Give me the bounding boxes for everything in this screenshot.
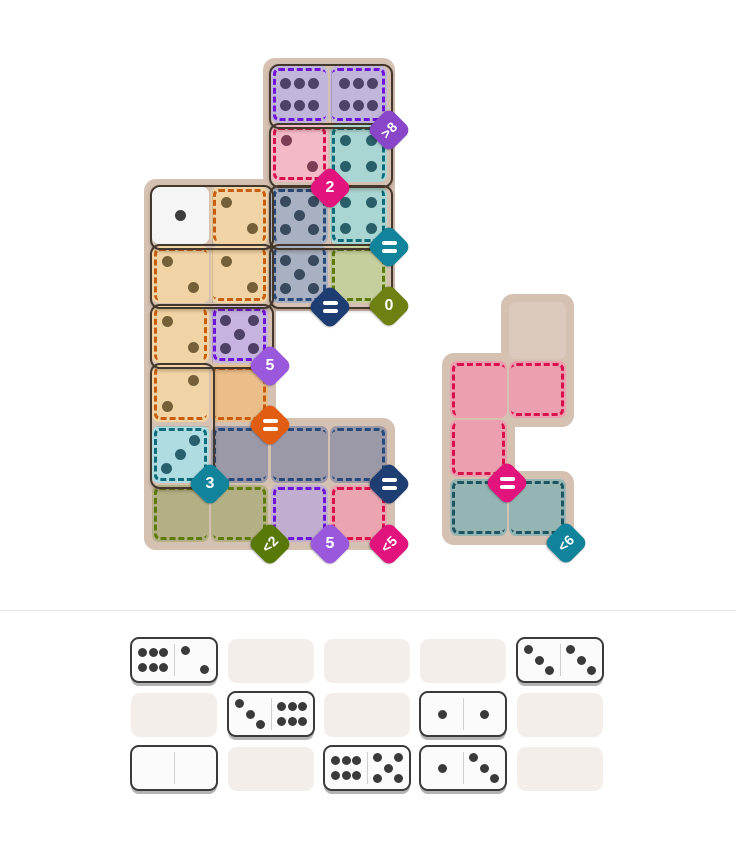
tray-slot-1-2[interactable] xyxy=(324,693,410,737)
pip xyxy=(280,255,291,266)
region-border xyxy=(213,248,266,301)
tile-divider xyxy=(560,644,561,676)
tray-slot-1-4[interactable] xyxy=(517,693,603,737)
constraint-badge-5: 5 xyxy=(248,344,292,388)
pip xyxy=(235,699,244,708)
pip xyxy=(308,224,319,235)
badge-label xyxy=(308,285,352,329)
badge-label: 3 xyxy=(188,462,232,506)
pip xyxy=(308,255,319,266)
constraint-badge-<2: <2 xyxy=(248,522,292,566)
pip xyxy=(175,210,186,221)
pip xyxy=(331,756,340,765)
pip xyxy=(577,656,586,665)
constraint-badge-= xyxy=(485,461,529,505)
pip xyxy=(342,771,351,780)
pip xyxy=(524,645,533,654)
pip xyxy=(340,223,351,234)
badge-label xyxy=(248,403,292,447)
badge-label xyxy=(367,462,411,506)
tray-domino-1-3[interactable] xyxy=(419,745,507,791)
pip xyxy=(366,197,377,208)
region-border xyxy=(154,308,207,361)
pip xyxy=(288,717,297,726)
badge-label xyxy=(485,461,529,505)
constraint-badge-= xyxy=(248,403,292,447)
board-cell-C1[interactable] xyxy=(271,66,328,123)
pip xyxy=(149,648,158,657)
pip xyxy=(535,656,544,665)
pip xyxy=(308,100,319,111)
tile-divider xyxy=(463,752,464,784)
equals-icon xyxy=(382,241,397,246)
pip xyxy=(366,161,377,172)
pip xyxy=(294,100,305,111)
region-border xyxy=(154,248,207,301)
pip xyxy=(247,223,258,234)
pip xyxy=(221,197,232,208)
pip xyxy=(294,210,305,221)
pip xyxy=(149,663,158,672)
pip xyxy=(438,764,447,773)
pip xyxy=(331,771,340,780)
pip xyxy=(480,710,489,719)
badge-label: <5 xyxy=(358,513,420,575)
tile-divider xyxy=(367,752,368,784)
pip xyxy=(308,78,319,89)
pip xyxy=(340,135,351,146)
equals-icon xyxy=(500,477,515,482)
badge-label: <2 xyxy=(239,513,301,575)
pip xyxy=(294,269,305,280)
pip xyxy=(280,100,291,111)
badge-label: 0 xyxy=(367,284,411,328)
pip xyxy=(298,717,307,726)
pip xyxy=(175,449,186,460)
region-border xyxy=(452,363,505,416)
tray-domino-3-3[interactable] xyxy=(516,637,604,683)
pip xyxy=(352,771,361,780)
pip xyxy=(221,256,232,267)
pip xyxy=(352,756,361,765)
tile-divider xyxy=(271,698,272,730)
tray-domino-3-6[interactable] xyxy=(227,691,315,737)
tray-slot-1-0[interactable] xyxy=(131,693,217,737)
pip xyxy=(342,756,351,765)
pip xyxy=(159,663,168,672)
pip xyxy=(281,135,292,146)
pip xyxy=(294,78,305,89)
badge-label: 2 xyxy=(308,166,352,210)
tile-divider xyxy=(174,752,175,784)
pip xyxy=(188,282,199,293)
section-divider xyxy=(0,610,736,611)
constraint-badge-<6: <6 xyxy=(544,521,588,565)
tile-divider xyxy=(174,644,175,676)
pip xyxy=(159,648,168,657)
pip xyxy=(566,645,575,654)
region-border xyxy=(273,68,326,121)
tray-slot-2-1[interactable] xyxy=(228,747,314,791)
constraint-badge-5: 5 xyxy=(308,522,352,566)
constraint-badge->8: >8 xyxy=(367,108,411,152)
pip xyxy=(162,316,173,327)
pip xyxy=(353,78,364,89)
constraint-badge-0: 0 xyxy=(367,284,411,328)
pip xyxy=(277,702,286,711)
tray-domino-6-5[interactable] xyxy=(323,745,411,791)
tray-domino-6-2[interactable] xyxy=(130,637,218,683)
constraint-badge-= xyxy=(367,462,411,506)
region-border xyxy=(511,363,564,416)
region-border xyxy=(154,367,207,420)
tray-slot-0-1[interactable] xyxy=(228,639,314,683)
tray-slot-0-3[interactable] xyxy=(420,639,506,683)
equals-icon xyxy=(382,478,397,483)
pip xyxy=(181,646,190,655)
board-cell-A4[interactable] xyxy=(152,246,209,303)
pip xyxy=(298,702,307,711)
pip xyxy=(189,435,200,446)
board-cell-A3[interactable] xyxy=(152,187,209,244)
tray-slot-0-2[interactable] xyxy=(324,639,410,683)
badge-label: 5 xyxy=(308,522,352,566)
equals-icon xyxy=(323,301,338,306)
pip xyxy=(367,78,378,89)
board-cell-B4[interactable] xyxy=(211,246,268,303)
pip xyxy=(280,196,291,207)
board-cell-A5[interactable] xyxy=(152,306,209,363)
region-border xyxy=(213,189,266,242)
pip xyxy=(339,78,350,89)
pip xyxy=(373,774,382,783)
domino-puzzle-screen: >82053<25<5 <6 xyxy=(0,0,736,843)
pip xyxy=(394,753,403,762)
tray-domino-0-0[interactable] xyxy=(130,745,218,791)
constraint-badge-<5: <5 xyxy=(367,522,411,566)
pip xyxy=(288,702,297,711)
pip xyxy=(277,717,286,726)
pip xyxy=(438,710,447,719)
constraint-badge-= xyxy=(367,225,411,269)
side-cell-S1[interactable] xyxy=(509,302,566,359)
badge-label: 5 xyxy=(248,344,292,388)
tray-domino-1-1[interactable] xyxy=(419,691,507,737)
constraint-badge-3: 3 xyxy=(188,462,232,506)
pip xyxy=(280,224,291,235)
pip xyxy=(384,764,393,773)
pip xyxy=(188,375,199,386)
pip xyxy=(138,663,147,672)
constraint-badge-2: 2 xyxy=(308,166,352,210)
pip xyxy=(373,753,382,762)
pip xyxy=(490,774,499,783)
pip xyxy=(220,343,231,354)
pip xyxy=(220,315,231,326)
equals-icon xyxy=(263,419,278,424)
pip xyxy=(138,648,147,657)
board-cell-A6[interactable] xyxy=(152,365,209,422)
pip xyxy=(247,282,258,293)
constraint-badge-= xyxy=(308,285,352,329)
pip xyxy=(256,720,265,729)
pip xyxy=(188,342,199,353)
side-cell-P1[interactable] xyxy=(450,361,507,418)
pip xyxy=(234,329,245,340)
board-cell-B3[interactable] xyxy=(211,187,268,244)
pip xyxy=(246,710,255,719)
pip xyxy=(280,78,291,89)
side-cell-P2[interactable] xyxy=(509,361,566,418)
pip xyxy=(587,666,596,675)
pip xyxy=(545,666,554,675)
badge-label xyxy=(367,225,411,269)
pip xyxy=(248,315,259,326)
pip xyxy=(394,774,403,783)
pip xyxy=(200,665,209,674)
pip xyxy=(353,100,364,111)
pip xyxy=(339,100,350,111)
pip xyxy=(469,753,478,762)
pip xyxy=(162,256,173,267)
pip xyxy=(480,764,489,773)
tray-slot-2-4[interactable] xyxy=(517,747,603,791)
tile-divider xyxy=(463,698,464,730)
pip xyxy=(162,401,173,412)
badge-label: <6 xyxy=(535,512,597,574)
badge-label: >8 xyxy=(358,99,420,161)
pip xyxy=(280,283,291,294)
pip xyxy=(161,463,172,474)
